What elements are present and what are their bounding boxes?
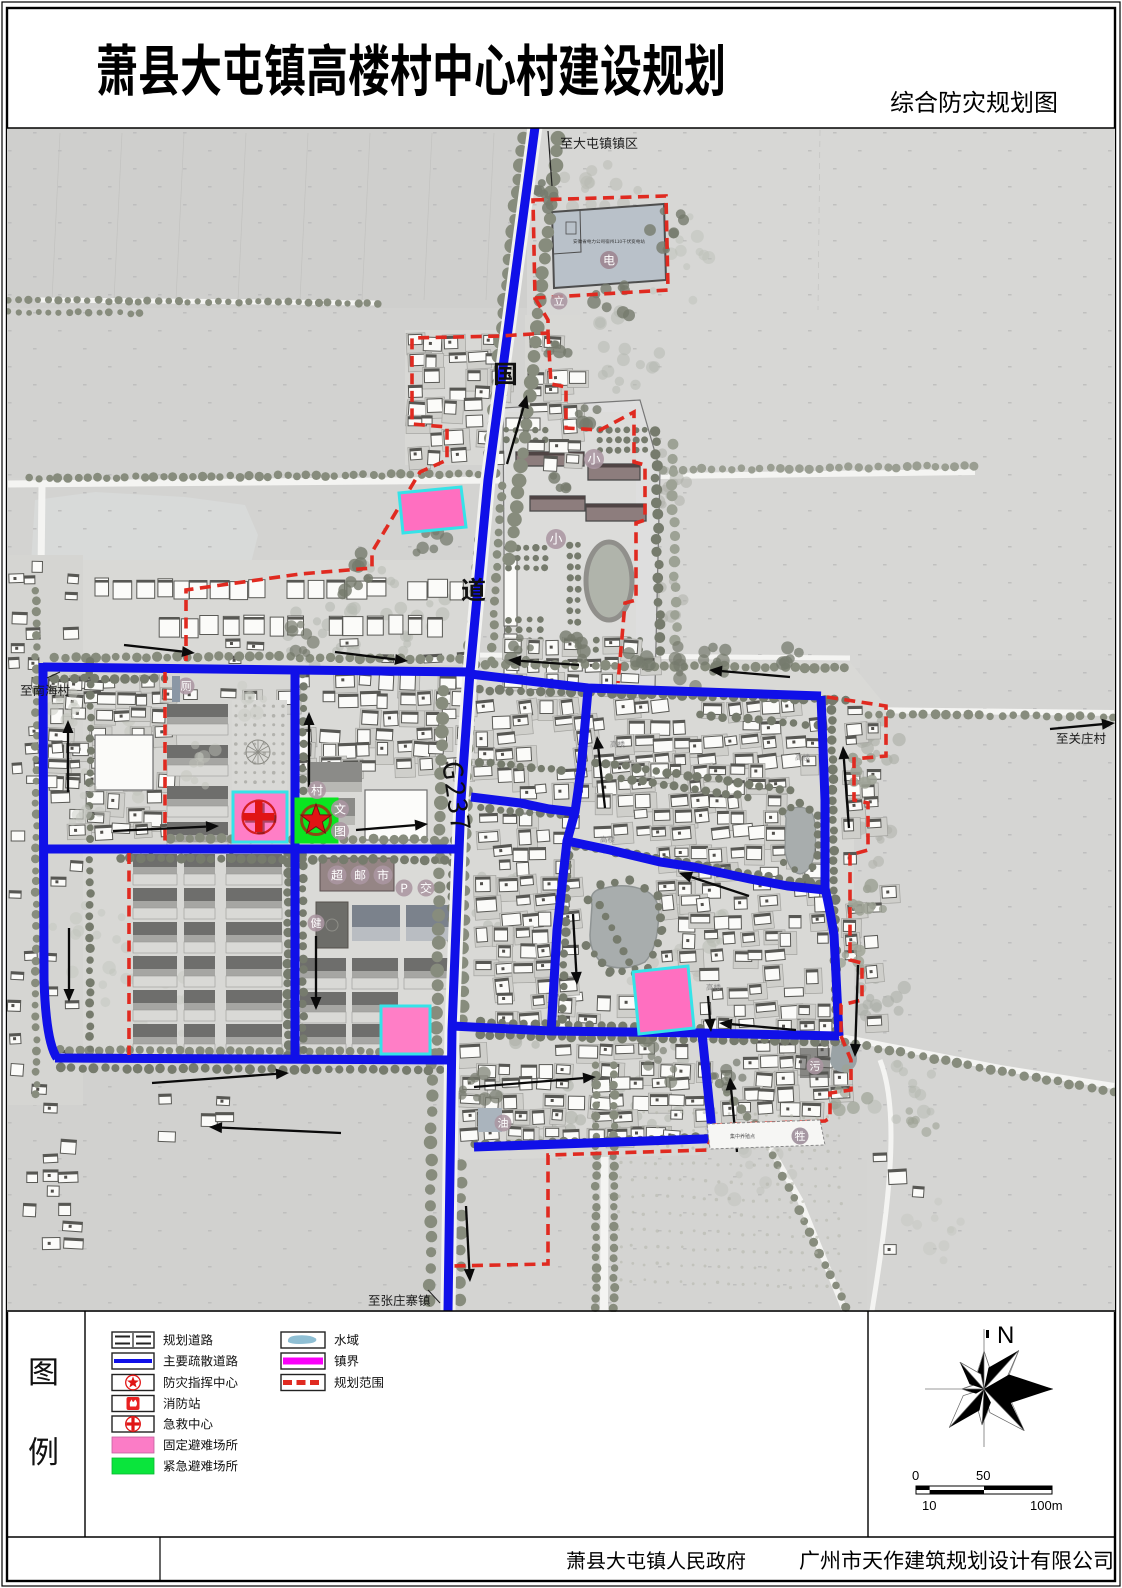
svg-text:交: 交	[420, 879, 432, 896]
svg-text:集中养殖点: 集中养殖点	[730, 1133, 755, 1140]
svg-text:50: 50	[976, 1468, 990, 1483]
svg-text:至关庄村: 至关庄村	[1056, 728, 1107, 747]
svg-text:牲: 牲	[795, 1128, 806, 1144]
svg-text:市: 市	[377, 866, 389, 883]
svg-text:安徽省电力公司宿州110千伏变电站: 安徽省电力公司宿州110千伏变电站	[573, 239, 645, 245]
svg-text:镇界: 镇界	[334, 1351, 360, 1370]
svg-text:综合防灾规划图: 综合防灾规划图	[890, 83, 1058, 118]
svg-text:规划道路: 规划道路	[163, 1330, 214, 1349]
svg-text:例: 例	[28, 1427, 59, 1472]
svg-text:规划范围: 规划范围	[334, 1372, 384, 1391]
svg-text:广州市天作建筑规划设计有限公司: 广州市天作建筑规划设计有限公司	[799, 1545, 1114, 1575]
svg-text:污: 污	[810, 1058, 821, 1074]
svg-text:紧急避难场所: 紧急避难场所	[163, 1456, 238, 1475]
svg-text:P: P	[400, 879, 408, 896]
svg-text:高楼: 高楼	[795, 752, 810, 763]
svg-text:立: 立	[554, 293, 565, 309]
svg-text:超: 超	[331, 866, 343, 883]
svg-text:萧县大屯镇高楼村中心村建设规划: 萧县大屯镇高楼村中心村建设规划	[96, 27, 726, 108]
svg-text:小: 小	[549, 529, 562, 548]
svg-text:至大屯镇镇区: 至大屯镇镇区	[560, 133, 638, 152]
svg-text:村: 村	[311, 781, 323, 798]
svg-text:固定避难场所: 固定避难场所	[163, 1435, 238, 1454]
svg-text:道: 道	[461, 571, 486, 607]
svg-text:高楼: 高楼	[600, 834, 615, 845]
svg-text:图: 图	[334, 822, 346, 839]
svg-text:高楼: 高楼	[610, 739, 625, 750]
svg-text:邮: 邮	[354, 866, 366, 883]
svg-text:主要疏散道路: 主要疏散道路	[163, 1351, 239, 1370]
svg-text:电: 电	[603, 251, 615, 268]
svg-text:萧县大屯镇人民政府: 萧县大屯镇人民政府	[566, 1545, 746, 1574]
svg-text:水域: 水域	[334, 1330, 359, 1349]
svg-text:至南海村: 至南海村	[20, 680, 71, 699]
svg-text:100m: 100m	[1030, 1498, 1063, 1513]
svg-text:高楼: 高楼	[706, 982, 721, 993]
svg-text:10: 10	[922, 1498, 936, 1513]
svg-text:至张庄寨镇: 至张庄寨镇	[368, 1290, 431, 1309]
svg-text:0: 0	[912, 1468, 919, 1483]
svg-text:油: 油	[498, 1115, 509, 1131]
svg-text:厕: 厕	[181, 678, 192, 694]
svg-text:图: 图	[28, 1347, 59, 1392]
svg-text:N: N	[997, 1322, 1014, 1349]
svg-text:急救中心: 急救中心	[163, 1414, 214, 1433]
svg-text:国: 国	[493, 355, 518, 391]
svg-text:文: 文	[334, 800, 346, 817]
svg-text:健: 健	[311, 915, 322, 931]
svg-text:小: 小	[587, 449, 600, 468]
svg-text:防灾指挥中心: 防灾指挥中心	[163, 1372, 239, 1391]
svg-text:消防站: 消防站	[163, 1393, 201, 1412]
